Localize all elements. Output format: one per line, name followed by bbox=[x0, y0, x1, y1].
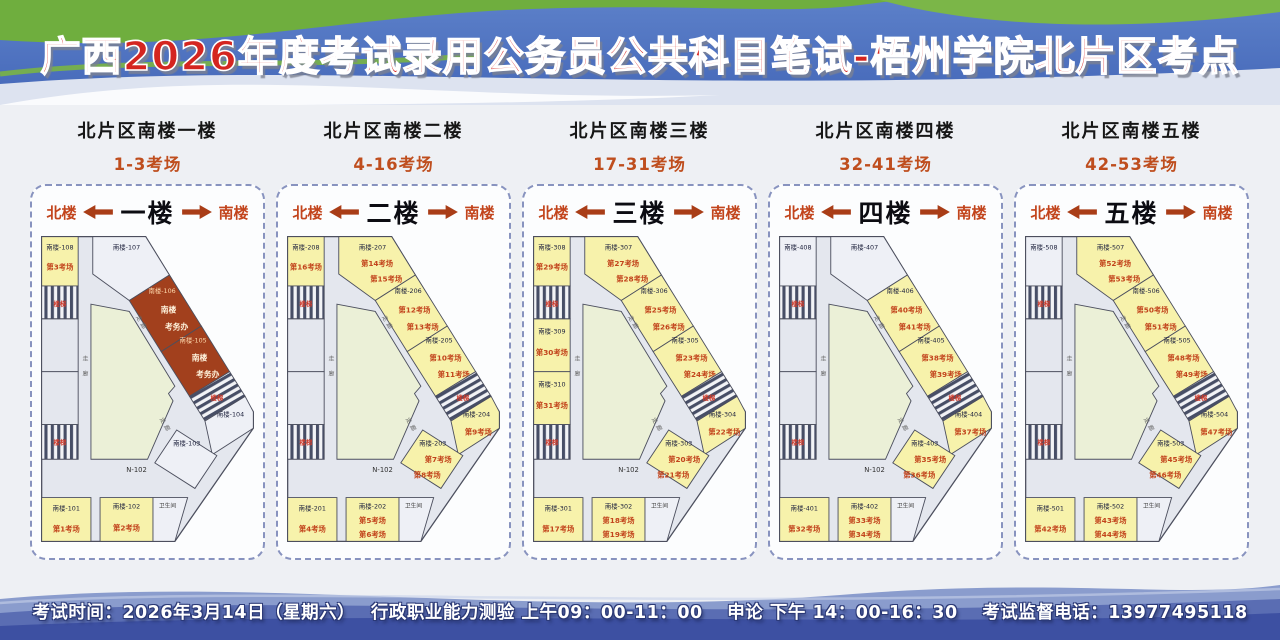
exam-room-label: 第53考场 bbox=[1108, 274, 1140, 283]
stairs-label: 楼梯 bbox=[546, 438, 559, 447]
exam-room-label: 第5考场 bbox=[359, 516, 386, 525]
south-building-label: 南楼 bbox=[219, 202, 249, 223]
right-arrow-icon bbox=[1166, 205, 1196, 219]
floor-column: 北片区南楼四楼32-41考场北楼四楼南楼南楼-408南楼-401第32考场南楼-… bbox=[768, 109, 1003, 560]
exam-room-label: 第52考场 bbox=[1099, 259, 1131, 268]
toilet-label: 卫生间 bbox=[405, 502, 422, 510]
room-number-label: 南楼-307 bbox=[605, 242, 632, 251]
footer-text: 考试时间：2026年3月14日（星期六） 行政职业能力测验 上午09：00-11… bbox=[0, 599, 1280, 624]
exam-room-label: 第25考场 bbox=[644, 305, 676, 314]
stairs-label: 楼梯 bbox=[1038, 438, 1051, 447]
stairs-label: 楼梯 bbox=[300, 438, 313, 447]
exam-room-label: 第13考场 bbox=[407, 323, 439, 332]
floor-room-range: 17-31考场 bbox=[593, 151, 686, 175]
floor-plan-panel: 北楼四楼南楼南楼-408南楼-401第32考场南楼-402第33考场第34考场南… bbox=[768, 184, 1003, 560]
exam-room-label: 第35考场 bbox=[914, 455, 946, 464]
room-mid2 bbox=[780, 372, 816, 425]
exam-room-label: 第3考场 bbox=[46, 262, 73, 271]
hall-label: N-102 bbox=[126, 466, 147, 474]
room-number-label: 南楼-501 bbox=[1037, 503, 1064, 512]
floor-section-title: 北片区南楼二楼 bbox=[324, 117, 464, 143]
stairs-label: 楼梯 bbox=[948, 393, 961, 402]
room-mid2 bbox=[288, 372, 324, 425]
north-building-label: 北楼 bbox=[1030, 202, 1060, 223]
north-building-label: 北楼 bbox=[292, 202, 322, 223]
exam-room-label: 第21考场 bbox=[657, 470, 689, 479]
room-number-label: 南楼-107 bbox=[113, 242, 140, 251]
room-number-label: 南楼-508 bbox=[1030, 242, 1057, 251]
room-number-label: 南楼-203 bbox=[419, 439, 446, 448]
floor-column: 北片区南楼二楼4-16考场北楼二楼南楼南楼-208第16考场南楼-201第4考场… bbox=[276, 109, 511, 560]
room-number-label: 南楼-202 bbox=[359, 502, 386, 511]
floor-column: 北片区南楼三楼17-31考场北楼三楼南楼南楼-308第29考场南楼-309第30… bbox=[522, 109, 757, 560]
room-mid1 bbox=[1026, 319, 1062, 372]
exam-room-label: 第43考场 bbox=[1095, 516, 1127, 525]
toilet-label: 卫生间 bbox=[897, 502, 914, 510]
room-number-label: 南楼-101 bbox=[53, 503, 80, 512]
floor-plan-header: 北楼一楼南楼 bbox=[38, 194, 257, 230]
stairs-label: 楼梯 bbox=[792, 438, 805, 447]
stairs-label: 楼梯 bbox=[300, 299, 313, 308]
left-arrow-icon bbox=[575, 205, 605, 219]
floor-section-title: 北片区南楼五楼 bbox=[1062, 117, 1202, 143]
exam-room-label: 第16考场 bbox=[290, 262, 322, 271]
room-number-label: 南楼-302 bbox=[605, 502, 632, 511]
floor-section-title: 北片区南楼一楼 bbox=[78, 117, 218, 143]
exam-room-label: 第38考场 bbox=[922, 354, 954, 363]
exam-room-label: 第42考场 bbox=[1034, 524, 1066, 533]
exam-room-label: 第9考场 bbox=[465, 428, 492, 437]
floor-plan-panel: 北楼五楼南楼南楼-508南楼-501第42考场南楼-502第43考场第44考场南… bbox=[1014, 184, 1249, 560]
room-number-label: 南楼-205 bbox=[426, 335, 453, 344]
room-mid1 bbox=[42, 319, 78, 372]
right-arrow-icon bbox=[428, 205, 458, 219]
corridor-label: 走 bbox=[329, 355, 335, 363]
exam-room-label: 第23考场 bbox=[676, 354, 708, 363]
room-number-label: 南楼-301 bbox=[545, 503, 572, 512]
corridor-label: 廊 bbox=[329, 369, 335, 377]
left-arrow-icon bbox=[329, 205, 359, 219]
stairs-label: 楼梯 bbox=[1194, 393, 1207, 402]
room-number-label: 南楼-105 bbox=[180, 335, 207, 344]
exam-room-label: 第40考场 bbox=[890, 305, 922, 314]
title-banner: 广西2026年度考试录用公务员公共科目笔试-梧州学院北片区考点 bbox=[0, 0, 1280, 105]
south-building-label: 南楼 bbox=[711, 202, 741, 223]
exam-room-label: 第17考场 bbox=[542, 524, 574, 533]
stairs-label: 楼梯 bbox=[54, 299, 67, 308]
exam-room-label: 第31考场 bbox=[536, 401, 568, 410]
room-number-label: 南楼-305 bbox=[672, 335, 699, 344]
exam-room-label: 第10考场 bbox=[430, 354, 462, 363]
hall-label: N-102 bbox=[618, 466, 639, 474]
floor-name-label: 三楼 bbox=[612, 194, 666, 230]
floor-plan-panel: 北楼三楼南楼南楼-308第29考场南楼-309第30考场南楼-310第31考场南… bbox=[522, 184, 757, 560]
stairs-label: 楼梯 bbox=[210, 393, 223, 402]
exam-room-label: 第12考场 bbox=[398, 305, 430, 314]
exam-room-label: 第28考场 bbox=[616, 274, 648, 283]
exam-room-label: 第51考场 bbox=[1145, 323, 1177, 332]
floor-room-range: 1-3考场 bbox=[114, 151, 182, 175]
exam-room-label: 第46考场 bbox=[1149, 470, 1181, 479]
room-number-label: 南楼-405 bbox=[918, 335, 945, 344]
right-arrow-icon bbox=[182, 205, 212, 219]
room-mid1 bbox=[288, 319, 324, 372]
exam-room-label: 第41考场 bbox=[899, 323, 931, 332]
exam-room-label: 第4考场 bbox=[299, 524, 326, 533]
exam-room-label: 第36考场 bbox=[903, 470, 935, 479]
exam-room-label: 第47考场 bbox=[1200, 428, 1232, 437]
toilet-label: 卫生间 bbox=[651, 502, 668, 510]
floor-column: 北片区南楼五楼42-53考场北楼五楼南楼南楼-508南楼-501第42考场南楼-… bbox=[1014, 109, 1249, 560]
stairs-label: 楼梯 bbox=[456, 393, 469, 402]
exam-room-label: 第15考场 bbox=[370, 274, 402, 283]
room-number-label: 南楼-502 bbox=[1097, 502, 1124, 511]
room-number-label: 南楼-106 bbox=[148, 286, 175, 295]
floor-plan-header: 北楼五楼南楼 bbox=[1022, 194, 1241, 230]
exam-room-label: 第27考场 bbox=[607, 259, 639, 268]
stairs-label: 楼梯 bbox=[702, 393, 715, 402]
exam-room-label: 第18考场 bbox=[603, 516, 635, 525]
corridor-label: 廊 bbox=[83, 369, 89, 377]
room-number-label: 南楼-207 bbox=[359, 242, 386, 251]
floor-room-range: 4-16考场 bbox=[353, 151, 433, 175]
toilet-label: 卫生间 bbox=[159, 502, 176, 510]
north-building-label: 北楼 bbox=[784, 202, 814, 223]
stairs-label: 楼梯 bbox=[546, 299, 559, 308]
room-number-label: 南楼-308 bbox=[538, 242, 565, 251]
room-number-label: 南楼-506 bbox=[1132, 286, 1159, 295]
room-number-label: 南楼-102 bbox=[113, 502, 140, 511]
page-title: 广西2026年度考试录用公务员公共科目笔试-梧州学院北片区考点 bbox=[0, 24, 1280, 82]
room-number-label: 南楼-503 bbox=[1157, 439, 1184, 448]
floor-plan-drawing: 南楼-408南楼-401第32考场南楼-402第33考场第34考场南楼-407南… bbox=[776, 233, 995, 545]
room-number-label: 南楼-402 bbox=[851, 502, 878, 511]
room-number-label: 南楼-303 bbox=[665, 439, 692, 448]
floor-plan-panel: 北楼一楼南楼南楼-108第3考场南楼-101第1考场南楼-102第2考场南楼-1… bbox=[30, 184, 265, 560]
corridor-label: 走 bbox=[575, 355, 581, 363]
floor-column: 北片区南楼一楼1-3考场北楼一楼南楼南楼-108第3考场南楼-101第1考场南楼… bbox=[30, 109, 265, 560]
right-arrow-icon bbox=[920, 205, 950, 219]
office-label: 考务办 bbox=[196, 369, 220, 379]
exam-room-label: 第6考场 bbox=[359, 530, 386, 539]
exam-room-label: 第2考场 bbox=[113, 523, 140, 532]
room-number-label: 南楼-401 bbox=[791, 503, 818, 512]
exam-room-label: 第29考场 bbox=[536, 262, 568, 271]
exam-room-label: 第19考场 bbox=[603, 530, 635, 539]
floor-plan-header: 北楼四楼南楼 bbox=[776, 194, 995, 230]
corridor-label: 廊 bbox=[821, 369, 827, 377]
floor-name-label: 一楼 bbox=[120, 194, 174, 230]
floor-plan-drawing: 南楼-108第3考场南楼-101第1考场南楼-102第2考场南楼-107南楼-1… bbox=[38, 233, 257, 545]
room-number-label: 南楼-103 bbox=[173, 439, 200, 448]
stairs-label: 楼梯 bbox=[792, 299, 805, 308]
floor-plan-panel: 北楼二楼南楼南楼-208第16考场南楼-201第4考场南楼-202第5考场第6考… bbox=[276, 184, 511, 560]
room-number-label: 南楼-309 bbox=[538, 326, 565, 335]
toilet-label: 卫生间 bbox=[1143, 502, 1160, 510]
floor-room-range: 42-53考场 bbox=[1085, 151, 1178, 175]
corridor-label: 走 bbox=[83, 355, 89, 363]
room-mid2 bbox=[42, 372, 78, 425]
south-building-label: 南楼 bbox=[465, 202, 495, 223]
north-building-label: 北楼 bbox=[46, 202, 76, 223]
exam-room-label: 第8考场 bbox=[414, 470, 441, 479]
floor-name-label: 四楼 bbox=[858, 194, 912, 230]
exam-room-label: 第48考场 bbox=[1168, 354, 1200, 363]
room-number-label: 南楼-108 bbox=[46, 242, 73, 251]
left-arrow-icon bbox=[1067, 205, 1097, 219]
exam-room-label: 第20考场 bbox=[668, 455, 700, 464]
room-number-label: 南楼-408 bbox=[784, 242, 811, 251]
exam-room-label: 第14考场 bbox=[361, 259, 393, 268]
room-number-label: 南楼-407 bbox=[851, 242, 878, 251]
room-mid1 bbox=[780, 319, 816, 372]
hall-label: N-102 bbox=[864, 466, 885, 474]
floor-plan-header: 北楼三楼南楼 bbox=[530, 194, 749, 230]
room-number-label: 南楼-206 bbox=[394, 286, 421, 295]
floor-panels: 北片区南楼一楼1-3考场北楼一楼南楼南楼-108第3考场南楼-101第1考场南楼… bbox=[0, 105, 1280, 560]
room-number-label: 南楼-507 bbox=[1097, 242, 1124, 251]
floor-name-label: 二楼 bbox=[366, 194, 420, 230]
right-arrow-icon bbox=[674, 205, 704, 219]
footer-banner: 考试时间：2026年3月14日（星期六） 行政职业能力测验 上午09：00-11… bbox=[0, 575, 1280, 640]
exam-room-label: 第33考场 bbox=[849, 516, 881, 525]
corridor-label: 廊 bbox=[575, 369, 581, 377]
north-building-label: 北楼 bbox=[538, 202, 568, 223]
exam-room-label: 第37考场 bbox=[954, 428, 986, 437]
exam-room-label: 第1考场 bbox=[53, 524, 80, 533]
room-number-label: 南楼-505 bbox=[1164, 335, 1191, 344]
exam-room-label: 第45考场 bbox=[1160, 455, 1192, 464]
corridor-label: 走 bbox=[1067, 355, 1073, 363]
floor-plan-drawing: 南楼-308第29考场南楼-309第30考场南楼-310第31考场南楼-301第… bbox=[530, 233, 749, 545]
corridor-label: 廊 bbox=[1067, 369, 1073, 377]
exam-room-label: 第34考场 bbox=[849, 530, 881, 539]
exam-room-label: 第26考场 bbox=[653, 323, 685, 332]
exam-room-label: 第50考场 bbox=[1136, 305, 1168, 314]
room-number-label: 南楼-306 bbox=[640, 286, 667, 295]
stairs-label: 楼梯 bbox=[1038, 299, 1051, 308]
exam-room-label: 第32考场 bbox=[788, 524, 820, 533]
corridor-label: 走 bbox=[821, 355, 827, 363]
south-building-label: 南楼 bbox=[1203, 202, 1233, 223]
room-number-label: 南楼-406 bbox=[886, 286, 913, 295]
room-number-label: 南楼-403 bbox=[911, 439, 938, 448]
south-building-label: 南楼 bbox=[957, 202, 987, 223]
office-label: 南楼 bbox=[161, 304, 177, 314]
floor-plan-drawing: 南楼-208第16考场南楼-201第4考场南楼-202第5考场第6考场南楼-20… bbox=[284, 233, 503, 545]
floor-section-title: 北片区南楼四楼 bbox=[816, 117, 956, 143]
exam-room-label: 第7考场 bbox=[425, 455, 452, 464]
floor-name-label: 五楼 bbox=[1104, 194, 1158, 230]
floor-plan-drawing: 南楼-508南楼-501第42考场南楼-502第43考场第44考场南楼-507第… bbox=[1022, 233, 1241, 545]
left-arrow-icon bbox=[821, 205, 851, 219]
office-label: 考务办 bbox=[165, 322, 189, 332]
room-mid2 bbox=[1026, 372, 1062, 425]
floor-plan-header: 北楼二楼南楼 bbox=[284, 194, 503, 230]
room-number-label: 南楼-208 bbox=[292, 242, 319, 251]
office-label: 南楼 bbox=[192, 353, 208, 363]
hall-label: N-102 bbox=[372, 466, 393, 474]
stairs-label: 楼梯 bbox=[54, 438, 67, 447]
floor-room-range: 32-41考场 bbox=[839, 151, 932, 175]
floor-section-title: 北片区南楼三楼 bbox=[570, 117, 710, 143]
exam-room-label: 第44考场 bbox=[1095, 530, 1127, 539]
exam-room-label: 第22考场 bbox=[708, 428, 740, 437]
room-number-label: 南楼-310 bbox=[538, 379, 565, 388]
room-number-label: 南楼-201 bbox=[299, 503, 326, 512]
exam-room-label: 第30考场 bbox=[536, 348, 568, 357]
left-arrow-icon bbox=[83, 205, 113, 219]
